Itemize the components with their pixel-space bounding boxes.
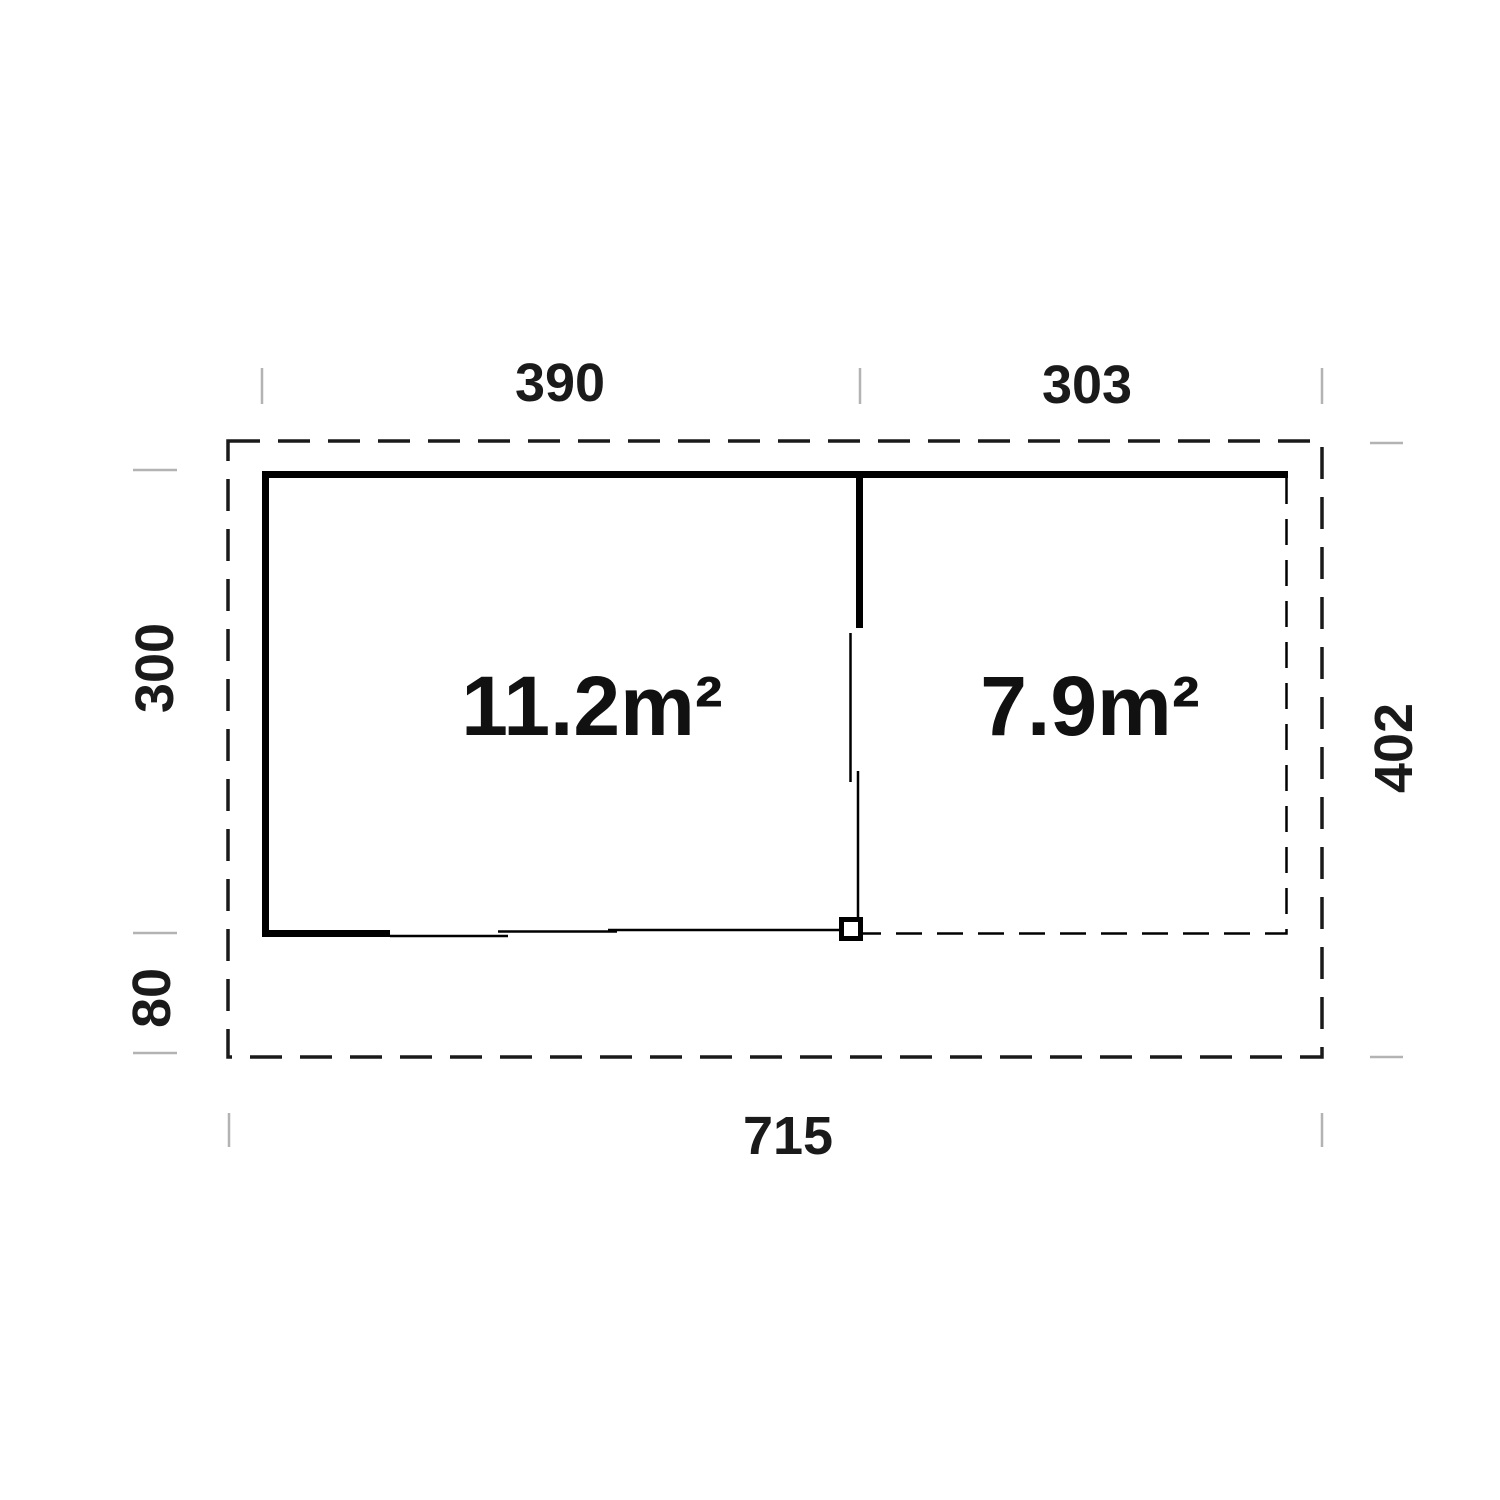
floor-plan-page: 390 303 300 80 402 715 11.2m² 7.9m² [0,0,1500,1500]
dimension-label-total-depth: 402 [1364,703,1424,793]
dimension-label-width-left: 390 [515,353,605,413]
dimension-label-overhang: 80 [122,968,182,1028]
dimension-label-width-right: 303 [1042,355,1132,415]
top-wall [262,471,1288,478]
dimension-label-total-width: 715 [743,1106,833,1166]
left-wall [262,471,269,937]
front-wall-segment [262,930,390,937]
partition-wall [856,471,863,628]
floor-plan-canvas: 390 303 300 80 402 715 11.2m² 7.9m² [0,0,1500,1500]
dimension-label-depth: 300 [125,623,185,713]
corner-post-marker [842,920,861,939]
room-area-label-terrace: 7.9m² [980,659,1199,753]
room-area-label-main: 11.2m² [461,659,723,753]
